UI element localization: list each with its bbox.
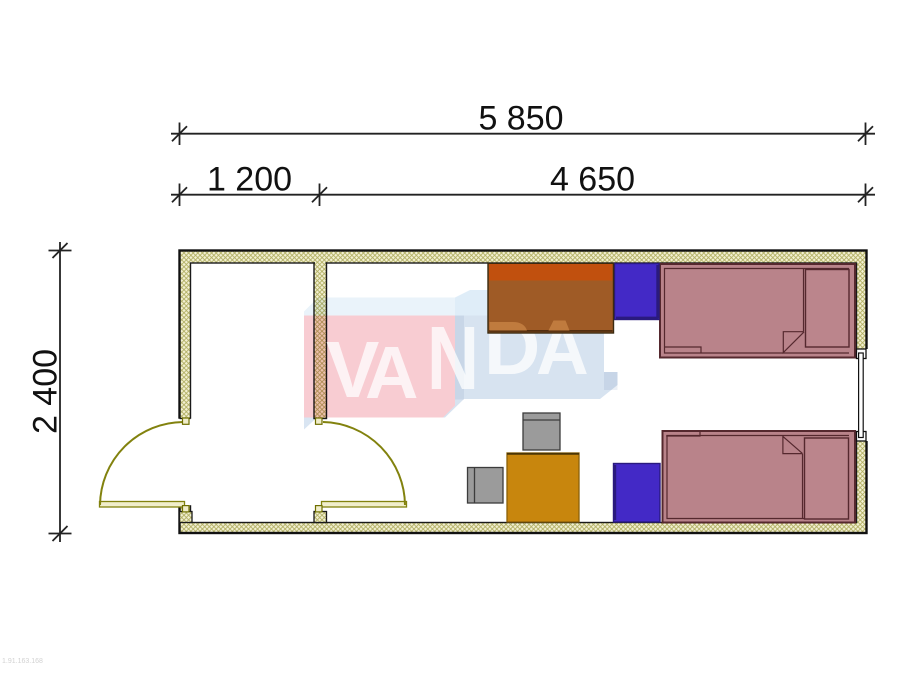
svg-text:2 400: 2 400 (27, 349, 65, 434)
svg-text:4 650: 4 650 (550, 161, 635, 199)
svg-text:1.91.163.168: 1.91.163.168 (2, 658, 43, 665)
svg-text:5 850: 5 850 (478, 99, 563, 137)
svg-text:N: N (427, 308, 479, 408)
svg-text:1 200: 1 200 (207, 161, 292, 199)
svg-text:A: A (365, 331, 418, 414)
